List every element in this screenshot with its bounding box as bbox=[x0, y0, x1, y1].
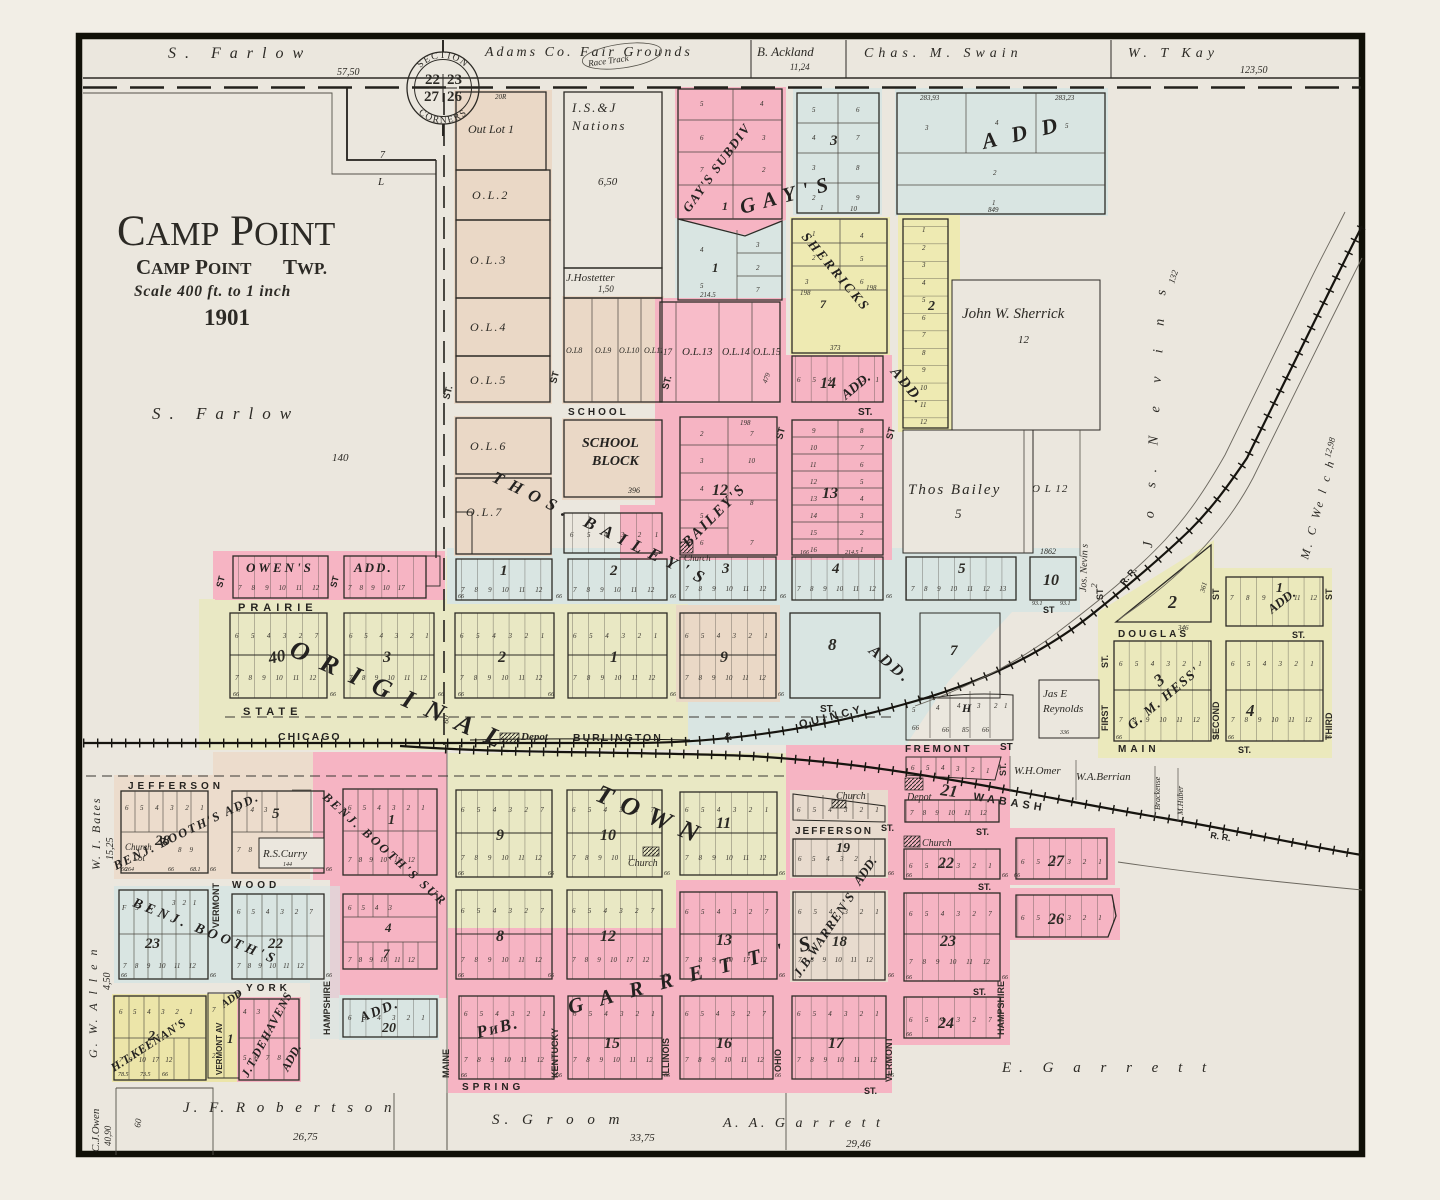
svg-text:283,23: 283,23 bbox=[1055, 94, 1075, 102]
svg-text:OHIO: OHIO bbox=[773, 1049, 783, 1072]
svg-text:20R: 20R bbox=[495, 93, 507, 101]
svg-text:23: 23 bbox=[939, 933, 956, 950]
svg-text:7 8 9 10 11: 7 8 9 10 11 bbox=[572, 854, 634, 862]
svg-text:57,50: 57,50 bbox=[337, 67, 360, 78]
svg-text:I.S.&J: I.S.&J bbox=[571, 100, 617, 115]
svg-text:Church: Church bbox=[922, 838, 952, 849]
svg-text:2: 2 bbox=[922, 244, 926, 252]
svg-text:66: 66 bbox=[458, 594, 464, 600]
svg-text:2: 2 bbox=[700, 430, 704, 438]
svg-text:5: 5 bbox=[912, 706, 916, 714]
svg-text:O.L.15: O.L.15 bbox=[753, 347, 781, 358]
svg-text:23: 23 bbox=[447, 72, 462, 88]
svg-text:G. W. A l l e n: G. W. A l l e n bbox=[86, 947, 100, 1058]
svg-text:14: 14 bbox=[810, 512, 818, 520]
svg-text:Out Lot 1: Out Lot 1 bbox=[468, 122, 514, 136]
svg-text:4: 4 bbox=[860, 495, 864, 503]
svg-text:7: 7 bbox=[212, 1006, 216, 1014]
svg-text:17: 17 bbox=[828, 1035, 845, 1052]
svg-text:66: 66 bbox=[461, 1073, 467, 1079]
svg-text:1,50: 1,50 bbox=[598, 284, 614, 294]
svg-text:123,50: 123,50 bbox=[1240, 65, 1268, 76]
svg-text:40,90: 40,90 bbox=[103, 1125, 113, 1146]
svg-text:3: 3 bbox=[859, 512, 864, 520]
svg-text:144: 144 bbox=[283, 861, 292, 868]
svg-text:5: 5 bbox=[958, 561, 966, 577]
svg-text:ST.: ST. bbox=[864, 1086, 877, 1096]
svg-text:66: 66 bbox=[780, 594, 786, 600]
svg-text:6: 6 bbox=[922, 314, 926, 322]
svg-text:4: 4 bbox=[922, 279, 926, 287]
svg-text:73.5: 73.5 bbox=[140, 1072, 151, 1078]
svg-text:66: 66 bbox=[670, 594, 676, 600]
svg-text:6,50: 6,50 bbox=[598, 176, 618, 188]
svg-text:6 5 4 3 2 1: 6 5 4 3 2 1 bbox=[348, 804, 425, 812]
svg-text:7 8 9 10 11 12: 7 8 9 10 11 12 bbox=[461, 956, 542, 964]
svg-text:CHICAGO: CHICAGO bbox=[278, 731, 342, 743]
svg-text:BURLINGTON: BURLINGTON bbox=[573, 732, 663, 744]
svg-text:66: 66 bbox=[906, 975, 912, 981]
svg-text:7 8 9 10 17: 7 8 9 10 17 bbox=[348, 584, 405, 592]
svg-text:Church: Church bbox=[628, 858, 658, 869]
svg-text:66: 66 bbox=[886, 594, 892, 600]
svg-text:1: 1 bbox=[500, 563, 508, 579]
svg-text:66: 66 bbox=[326, 973, 332, 979]
svg-text:33,75: 33,75 bbox=[629, 1132, 655, 1144]
svg-text:WOOD: WOOD bbox=[232, 880, 280, 891]
svg-text:Reynolds: Reynolds bbox=[1042, 703, 1083, 715]
svg-text:MAINE: MAINE bbox=[441, 1049, 451, 1078]
svg-text:7 8 9 10 11 12: 7 8 9 10 11 12 bbox=[573, 586, 655, 594]
svg-text:7 8 9 10 17 12: 7 8 9 10 17 12 bbox=[572, 956, 650, 964]
svg-text:ADD.: ADD. bbox=[353, 560, 393, 575]
svg-text:DOUGLAS: DOUGLAS bbox=[1118, 629, 1189, 640]
svg-text:S. Farlow: S. Farlow bbox=[168, 45, 312, 62]
svg-text:93.1: 93.1 bbox=[1032, 601, 1043, 607]
svg-text:6 5 4 3 2 7: 6 5 4 3 2 7 bbox=[685, 908, 769, 916]
svg-text:ST: ST bbox=[1324, 588, 1334, 600]
svg-text:140: 140 bbox=[332, 452, 349, 464]
svg-text:6 5 4 3 2 1: 6 5 4 3 2 1 bbox=[797, 1010, 879, 1018]
svg-text:9: 9 bbox=[1262, 594, 1266, 602]
svg-text:3: 3 bbox=[924, 124, 929, 132]
svg-text:1: 1 bbox=[986, 767, 990, 775]
svg-text:7: 7 bbox=[756, 286, 760, 294]
svg-text:12: 12 bbox=[810, 478, 818, 486]
svg-text:6 5 4 3 2 1: 6 5 4 3 2 1 bbox=[125, 804, 204, 812]
svg-text:6 5 4 3 2 7: 6 5 4 3 2 7 bbox=[461, 907, 544, 915]
svg-text:66: 66 bbox=[548, 871, 554, 877]
svg-text:H: H bbox=[961, 701, 972, 715]
svg-text:373: 373 bbox=[829, 344, 841, 352]
svg-text:2: 2 bbox=[860, 529, 864, 537]
svg-text:21: 21 bbox=[938, 780, 958, 801]
svg-text:66: 66 bbox=[556, 594, 562, 600]
svg-text:29,46: 29,46 bbox=[846, 1138, 871, 1150]
svg-text:ST: ST bbox=[1000, 742, 1013, 753]
svg-text:9: 9 bbox=[812, 427, 816, 435]
svg-text:4: 4 bbox=[860, 232, 864, 240]
svg-text:ST.: ST. bbox=[1100, 655, 1110, 668]
svg-text:66: 66 bbox=[906, 1032, 912, 1038]
svg-text:6 5 4 3 2 1: 6 5 4 3 2 1 bbox=[573, 632, 657, 640]
svg-text:&: & bbox=[724, 731, 732, 743]
svg-text:ST: ST bbox=[1043, 605, 1055, 615]
svg-text:W. T Kay: W. T Kay bbox=[1128, 46, 1219, 61]
svg-text:66: 66 bbox=[1325, 735, 1331, 741]
svg-text:HAMPSHIRE: HAMPSHIRE bbox=[996, 981, 1006, 1035]
svg-text:ST: ST bbox=[1211, 588, 1221, 600]
svg-text:3: 3 bbox=[721, 561, 730, 577]
svg-text:66: 66 bbox=[326, 867, 332, 873]
svg-text:Chas. M. Swain: Chas. M. Swain bbox=[864, 46, 1023, 61]
svg-text:8: 8 bbox=[1246, 594, 1250, 602]
svg-text:66: 66 bbox=[548, 692, 554, 698]
svg-text:J. F. R o b e r t s o n: J. F. R o b e r t s o n bbox=[183, 1100, 396, 1116]
svg-text:O.L11: O.L11 bbox=[644, 346, 664, 355]
svg-text:66: 66 bbox=[458, 973, 464, 979]
svg-text:9: 9 bbox=[856, 194, 860, 202]
svg-text:O.L.6: O.L.6 bbox=[470, 439, 507, 453]
svg-text:6: 6 bbox=[911, 764, 915, 772]
svg-text:Jas E: Jas E bbox=[1043, 688, 1067, 700]
svg-text:66: 66 bbox=[982, 726, 990, 734]
svg-text:27: 27 bbox=[424, 89, 440, 105]
svg-text:1: 1 bbox=[712, 260, 719, 275]
svg-text:6: 6 bbox=[860, 461, 864, 469]
svg-text:PRAIRIE: PRAIRIE bbox=[238, 602, 318, 614]
svg-text:7 8 9 10 11 12: 7 8 9 10 11 12 bbox=[685, 674, 766, 682]
svg-text:5: 5 bbox=[812, 106, 816, 114]
svg-text:7: 7 bbox=[750, 430, 754, 438]
svg-text:66: 66 bbox=[330, 692, 336, 698]
svg-text:JEFFERSON: JEFFERSON bbox=[128, 781, 224, 792]
svg-text:6 5 4 3 2 7: 6 5 4 3 2 7 bbox=[572, 907, 655, 915]
svg-text:7 8 9 10 11 12: 7 8 9 10 11 12 bbox=[685, 854, 767, 862]
svg-text:849: 849 bbox=[988, 206, 999, 214]
svg-text:O.L10: O.L10 bbox=[619, 346, 639, 355]
svg-text:68.1: 68.1 bbox=[190, 867, 201, 873]
svg-text:6 5 4 3 2 1: 6 5 4 3 2 1 bbox=[1231, 660, 1314, 668]
svg-text:FREMONT: FREMONT bbox=[905, 744, 972, 755]
svg-text:CAMP POINT: CAMP POINT bbox=[117, 208, 335, 255]
svg-text:1: 1 bbox=[922, 226, 926, 234]
svg-text:KENTUCKY: KENTUCKY bbox=[550, 1028, 560, 1078]
svg-text:16: 16 bbox=[716, 1035, 732, 1052]
svg-text:66: 66 bbox=[1014, 873, 1020, 879]
svg-text:12: 12 bbox=[600, 928, 616, 945]
svg-text:13: 13 bbox=[716, 932, 732, 949]
svg-text:W.H.Omer: W.H.Omer bbox=[1014, 765, 1061, 777]
svg-text:VERMONT: VERMONT bbox=[211, 882, 221, 928]
svg-text:12: 12 bbox=[920, 418, 928, 426]
svg-text:C.J.Owen: C.J.Owen bbox=[90, 1108, 102, 1152]
svg-text:17: 17 bbox=[663, 347, 673, 357]
svg-text:7: 7 bbox=[1230, 594, 1234, 602]
svg-text:66: 66 bbox=[458, 871, 464, 877]
svg-text:4,50: 4,50 bbox=[102, 973, 113, 991]
svg-text:66: 66 bbox=[670, 692, 676, 698]
svg-text:1: 1 bbox=[722, 199, 728, 213]
svg-text:O.L.13: O.L.13 bbox=[682, 346, 713, 358]
svg-text:BLOCK: BLOCK bbox=[591, 454, 640, 469]
svg-text:214.5: 214.5 bbox=[845, 549, 859, 556]
svg-text:1862: 1862 bbox=[1040, 547, 1056, 556]
svg-text:ST.: ST. bbox=[881, 823, 894, 833]
svg-text:HAMPSHIRE: HAMPSHIRE bbox=[322, 981, 332, 1035]
svg-text:7: 7 bbox=[750, 539, 754, 547]
svg-text:2: 2 bbox=[609, 563, 618, 579]
svg-text:6 5 4 3 2 1: 6 5 4 3 2 1 bbox=[685, 632, 768, 640]
svg-text:2: 2 bbox=[994, 702, 998, 710]
svg-text:6: 6 bbox=[856, 106, 860, 114]
svg-text:6 5 4 3 2 1: 6 5 4 3 2 1 bbox=[460, 632, 544, 640]
svg-text:2: 2 bbox=[756, 264, 760, 272]
svg-text:198: 198 bbox=[740, 419, 751, 427]
svg-text:166: 166 bbox=[800, 550, 809, 556]
svg-text:J.Hostetter: J.Hostetter bbox=[566, 272, 615, 284]
svg-text:66: 66 bbox=[664, 871, 670, 877]
svg-text:O.L.2: O.L.2 bbox=[472, 188, 509, 202]
svg-text:6 5 4 3 2 1: 6 5 4 3 2 1 bbox=[349, 632, 429, 640]
svg-text:3: 3 bbox=[976, 702, 981, 710]
svg-text:O L 12: O L 12 bbox=[1032, 483, 1068, 495]
svg-text:13: 13 bbox=[822, 485, 838, 502]
svg-text:3: 3 bbox=[761, 134, 766, 142]
svg-text:198: 198 bbox=[866, 284, 877, 292]
svg-text:66: 66 bbox=[458, 692, 464, 698]
svg-text:Brackense: Brackense bbox=[1153, 776, 1162, 810]
svg-text:66: 66 bbox=[888, 1073, 894, 1079]
svg-text:24: 24 bbox=[937, 1015, 954, 1032]
svg-text:CAMP POINT TWP.: CAMP POINT TWP. bbox=[136, 255, 327, 279]
svg-text:9: 9 bbox=[720, 649, 728, 666]
svg-text:JEFFERSON: JEFFERSON bbox=[795, 826, 873, 837]
svg-text:10: 10 bbox=[600, 827, 616, 844]
svg-text:66: 66 bbox=[233, 692, 239, 698]
svg-text:66: 66 bbox=[888, 973, 894, 979]
svg-text:66: 66 bbox=[664, 1073, 670, 1079]
svg-text:2: 2 bbox=[497, 649, 506, 666]
svg-text:2: 2 bbox=[993, 169, 997, 177]
svg-text:John W. Sherrick: John W. Sherrick bbox=[962, 306, 1065, 322]
svg-text:4: 4 bbox=[760, 100, 764, 108]
svg-text:6 5 4 3: 6 5 4 3 bbox=[348, 904, 392, 912]
svg-text:3: 3 bbox=[921, 261, 926, 269]
svg-text:396: 396 bbox=[627, 486, 640, 495]
svg-text:O.L.14: O.L.14 bbox=[722, 347, 750, 358]
svg-text:66: 66 bbox=[556, 1073, 562, 1079]
svg-text:11: 11 bbox=[810, 461, 816, 469]
svg-text:5: 5 bbox=[860, 478, 864, 486]
svg-text:MAIN: MAIN bbox=[1118, 744, 1160, 755]
svg-text:9: 9 bbox=[922, 366, 926, 374]
svg-text:7 8 9 10 11 12: 7 8 9 10 11 12 bbox=[797, 1056, 877, 1064]
svg-text:ST.: ST. bbox=[1292, 630, 1305, 640]
svg-text:7 8 9 10 11 12: 7 8 9 10 11 12 bbox=[123, 962, 196, 970]
svg-text:1: 1 bbox=[860, 546, 864, 554]
svg-text:66: 66 bbox=[1116, 735, 1122, 741]
svg-text:12: 12 bbox=[1310, 594, 1318, 602]
svg-text:66: 66 bbox=[779, 871, 785, 877]
svg-text:18: 18 bbox=[832, 934, 848, 950]
svg-text:W. I. Bates: W. I. Bates bbox=[89, 796, 103, 870]
svg-text:Depot: Depot bbox=[520, 731, 549, 743]
svg-text:66: 66 bbox=[888, 871, 894, 877]
svg-text:O.L9: O.L9 bbox=[595, 346, 611, 355]
svg-text:16: 16 bbox=[810, 546, 818, 554]
svg-text:ST.: ST. bbox=[820, 704, 835, 715]
svg-text:M.Huber: M.Huber bbox=[1176, 785, 1185, 816]
svg-text:22: 22 bbox=[937, 855, 954, 872]
svg-text:66: 66 bbox=[778, 692, 784, 698]
svg-text:6 5 4 3 2 7: 6 5 4 3 2 7 bbox=[685, 1010, 766, 1018]
svg-text:5: 5 bbox=[922, 296, 926, 304]
svg-text:SPRING: SPRING bbox=[462, 1082, 524, 1093]
svg-text:1901: 1901 bbox=[204, 305, 250, 330]
svg-text:ST.: ST. bbox=[976, 827, 989, 837]
svg-text:336: 336 bbox=[1059, 730, 1069, 736]
svg-text:5: 5 bbox=[926, 764, 930, 772]
svg-text:4: 4 bbox=[831, 561, 840, 577]
svg-text:5: 5 bbox=[700, 282, 704, 290]
svg-text:7: 7 bbox=[856, 134, 860, 142]
svg-text:7 8 9 10 11 12: 7 8 9 10 11 12 bbox=[909, 958, 990, 966]
svg-text:B. Ackland: B. Ackland bbox=[757, 44, 814, 59]
svg-text:S. Farlow: S. Farlow bbox=[152, 404, 300, 423]
svg-text:283,93: 283,93 bbox=[920, 94, 940, 102]
svg-text:R.S.Curry: R.S.Curry bbox=[262, 848, 307, 860]
svg-text:O.L.3: O.L.3 bbox=[470, 253, 507, 267]
svg-text:ST.: ST. bbox=[858, 407, 873, 418]
svg-text:ST.: ST. bbox=[998, 763, 1008, 776]
svg-text:ST: ST bbox=[1095, 588, 1105, 600]
svg-text:66: 66 bbox=[210, 973, 216, 979]
svg-text:8: 8 bbox=[496, 928, 504, 945]
svg-text:66: 66 bbox=[912, 724, 920, 732]
svg-text:6: 6 bbox=[700, 134, 704, 142]
svg-text:7 8 9 10 11 12: 7 8 9 10 11 12 bbox=[464, 1056, 544, 1064]
svg-text:66: 66 bbox=[906, 873, 912, 879]
svg-text:10: 10 bbox=[1043, 572, 1059, 589]
svg-text:214.5: 214.5 bbox=[700, 291, 716, 299]
svg-text:22: 22 bbox=[425, 72, 440, 88]
svg-text:4: 4 bbox=[936, 704, 940, 712]
svg-text:6 5 4 3 2 7: 6 5 4 3 2 7 bbox=[461, 806, 544, 814]
svg-text:7 8 9 10 11 12: 7 8 9 10 11 12 bbox=[573, 674, 656, 682]
svg-text:6 5 4 3 2 7: 6 5 4 3 2 7 bbox=[909, 910, 992, 918]
svg-text:4: 4 bbox=[700, 485, 704, 493]
svg-text:15: 15 bbox=[810, 529, 818, 537]
svg-text:3: 3 bbox=[955, 765, 960, 773]
svg-text:ST.: ST. bbox=[1238, 745, 1251, 755]
svg-text:ST.: ST. bbox=[973, 987, 986, 997]
svg-text:66: 66 bbox=[548, 973, 554, 979]
svg-text:7 8 9 10 11 12: 7 8 9 10 11 12 bbox=[797, 585, 876, 593]
svg-text:13: 13 bbox=[810, 495, 818, 503]
svg-text:19: 19 bbox=[836, 841, 850, 856]
svg-text:3: 3 bbox=[755, 241, 760, 249]
svg-text:7 8 9 10 11 12: 7 8 9 10 11 12 bbox=[235, 674, 317, 682]
svg-text:1: 1 bbox=[388, 813, 395, 828]
svg-text:Depot: Depot bbox=[906, 792, 932, 803]
svg-text:1: 1 bbox=[610, 649, 618, 666]
svg-text:6 5 4 3 2 7: 6 5 4 3 2 7 bbox=[237, 908, 313, 916]
svg-text:SCHOOL: SCHOOL bbox=[582, 436, 639, 451]
svg-text:O.L.4: O.L.4 bbox=[470, 320, 507, 334]
svg-text:4: 4 bbox=[1245, 701, 1255, 720]
svg-text:FIRST: FIRST bbox=[1100, 704, 1110, 731]
svg-text:7 8 9 10 11 12: 7 8 9 10 11 12 bbox=[238, 584, 320, 592]
svg-text:85: 85 bbox=[962, 726, 970, 734]
svg-text:Church: Church bbox=[836, 791, 866, 802]
svg-text:7 8 9 10 11 12: 7 8 9 10 11 12 bbox=[461, 586, 543, 594]
svg-text:11: 11 bbox=[716, 815, 731, 832]
svg-text:26,75: 26,75 bbox=[293, 1131, 318, 1143]
svg-text:7 8 9 10 11 12: 7 8 9 10 11 12 bbox=[348, 956, 415, 964]
svg-text:4: 4 bbox=[957, 702, 961, 710]
svg-text:7 8: 7 8 bbox=[237, 846, 252, 854]
svg-text:2: 2 bbox=[1167, 592, 1177, 612]
svg-text:66: 66 bbox=[1213, 735, 1219, 741]
svg-text:S. G r o o m: S. G r o o m bbox=[492, 1112, 625, 1128]
svg-text:5: 5 bbox=[860, 255, 864, 263]
svg-text:7: 7 bbox=[950, 643, 958, 659]
svg-text:15,25: 15,25 bbox=[105, 838, 116, 861]
svg-text:7 8 9 10 11 12: 7 8 9 10 11 12 bbox=[460, 674, 543, 682]
svg-text:4: 4 bbox=[941, 764, 945, 772]
svg-text:66: 66 bbox=[162, 1072, 168, 1078]
svg-text:6: 6 bbox=[860, 278, 864, 286]
svg-text:66: 66 bbox=[775, 1073, 781, 1079]
svg-text:7 8 9 10 11 12: 7 8 9 10 11 12 bbox=[1231, 716, 1312, 724]
svg-text:5: 5 bbox=[700, 100, 704, 108]
svg-text:4: 4 bbox=[700, 246, 704, 254]
svg-text:SCHOOL: SCHOOL bbox=[568, 407, 629, 418]
svg-text:5: 5 bbox=[955, 506, 962, 521]
svg-text:20: 20 bbox=[381, 1021, 396, 1036]
svg-text:66: 66 bbox=[121, 973, 127, 979]
svg-text:14: 14 bbox=[820, 375, 836, 392]
svg-text:66: 66 bbox=[942, 726, 950, 734]
svg-text:5: 5 bbox=[272, 806, 280, 822]
svg-text:8 9: 8 9 bbox=[178, 846, 193, 854]
svg-text:7: 7 bbox=[922, 331, 926, 339]
svg-text:O.L8: O.L8 bbox=[566, 346, 582, 355]
svg-text:3: 3 bbox=[804, 278, 809, 286]
svg-text:4: 4 bbox=[384, 920, 392, 935]
svg-text:11,24: 11,24 bbox=[790, 62, 810, 72]
svg-text:2: 2 bbox=[927, 299, 935, 314]
svg-text:Scale 400 ft. to 1 inch: Scale 400 ft. to 1 inch bbox=[134, 283, 291, 300]
svg-text:23: 23 bbox=[144, 936, 161, 952]
svg-text:10: 10 bbox=[850, 205, 858, 213]
svg-text:7 8 9 10 11 12 13: 7 8 9 10 11 12 13 bbox=[911, 585, 1007, 593]
svg-text:7 8 9 10 11 12: 7 8 9 10 11 12 bbox=[685, 1056, 764, 1064]
svg-text:7: 7 bbox=[820, 297, 827, 311]
svg-text:15: 15 bbox=[604, 1035, 620, 1052]
svg-text:93.1: 93.1 bbox=[1060, 601, 1071, 607]
svg-text:2: 2 bbox=[762, 166, 766, 174]
svg-text:2: 2 bbox=[1089, 583, 1099, 588]
svg-text:8: 8 bbox=[860, 427, 864, 435]
svg-text:26: 26 bbox=[1047, 911, 1064, 928]
svg-text:Nations: Nations bbox=[571, 118, 626, 133]
svg-text:3: 3 bbox=[382, 649, 391, 666]
svg-text:7 8 9 10 11 12: 7 8 9 10 11 12 bbox=[910, 809, 987, 817]
svg-text:1: 1 bbox=[1004, 702, 1008, 710]
svg-text:1: 1 bbox=[820, 204, 824, 212]
